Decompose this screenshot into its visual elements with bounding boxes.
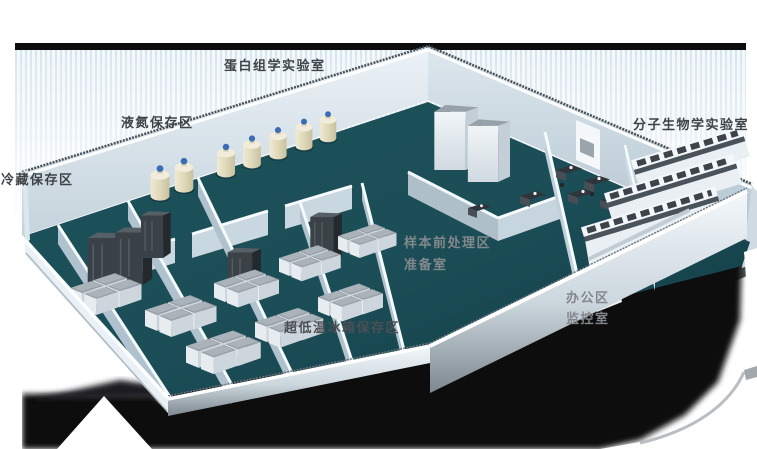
- label-office-area: 办公区: [566, 287, 610, 306]
- label-monitoring-room: 监控室: [566, 308, 610, 327]
- label-ult-freezer-storage: 超低温冰箱保存区: [284, 317, 400, 336]
- label-prep-room: 准备室: [404, 254, 448, 273]
- lab-floorplan-scene: 蛋白组学实验室 液氮保存区 冷藏保存区 分子生物学实验室 样本前处理区 准备室 …: [0, 0, 757, 449]
- label-proteomics-lab: 蛋白组学实验室: [224, 55, 326, 74]
- label-liquid-nitrogen-storage: 液氮保存区: [121, 112, 194, 131]
- label-cold-storage: 冷藏保存区: [1, 169, 74, 188]
- label-molecular-biology-lab: 分子生物学实验室: [633, 114, 749, 133]
- isometric-building-illustration: [0, 0, 757, 449]
- label-sample-pretreatment: 样本前处理区: [404, 232, 491, 251]
